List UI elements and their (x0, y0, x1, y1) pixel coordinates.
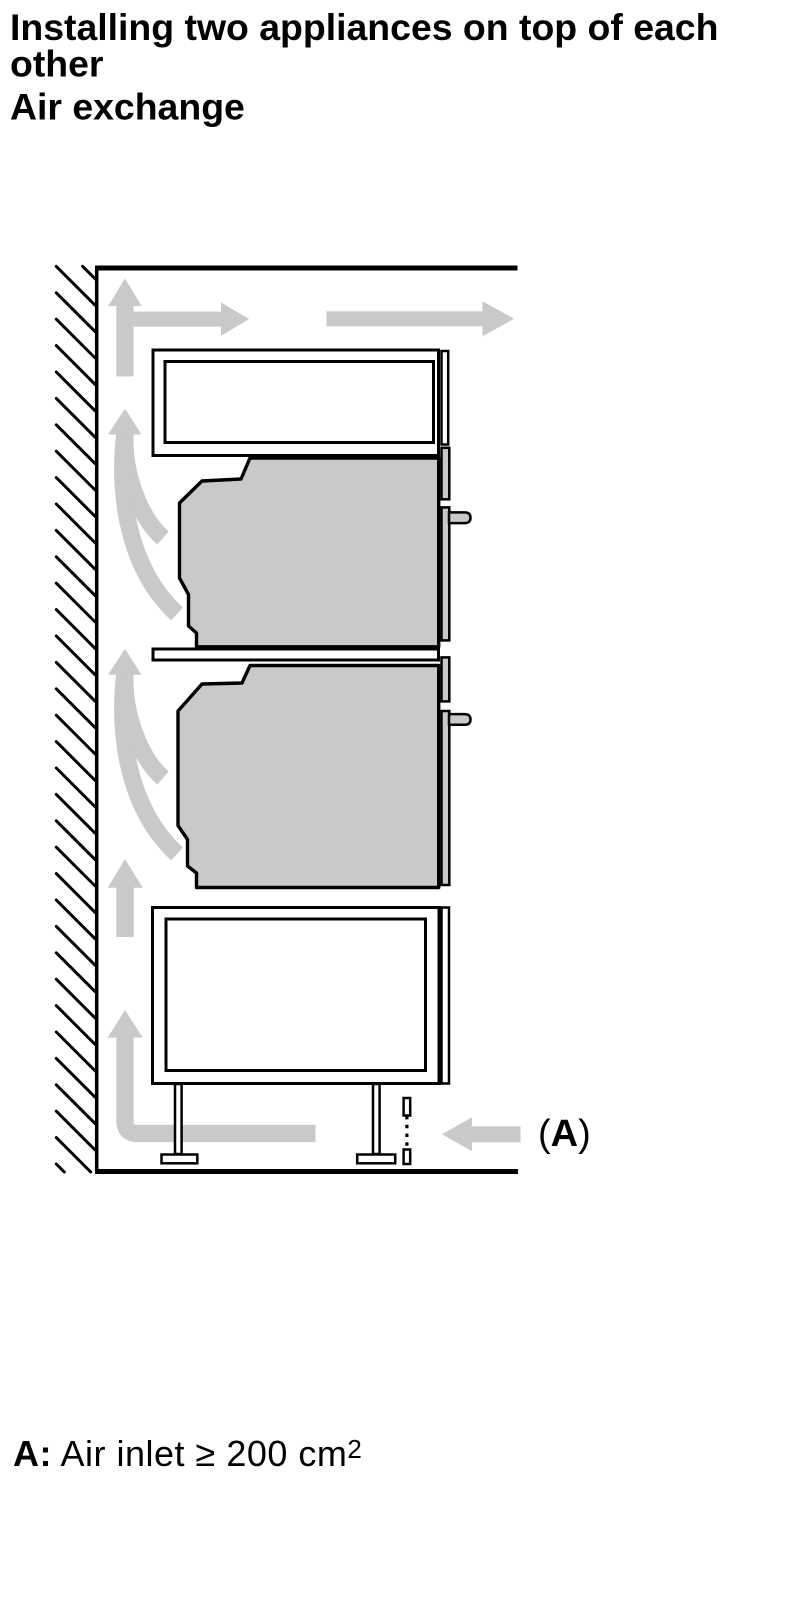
svg-text:Installing two appliances on t: Installing two appliances on top of each (10, 6, 718, 48)
svg-text:Air exchange: Air exchange (10, 86, 245, 128)
svg-text:(A): (A) (538, 1113, 591, 1155)
svg-text:other: other (10, 43, 103, 85)
svg-text:A: Air inlet ≥ 200 cm2: A: Air inlet ≥ 200 cm2 (13, 1433, 362, 1474)
